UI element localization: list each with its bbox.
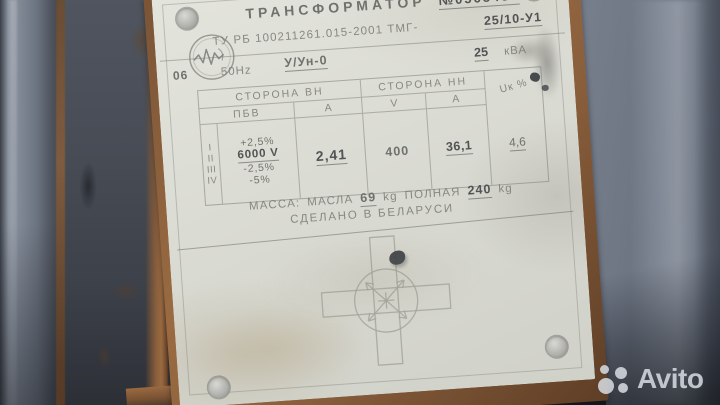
nameplate-assembly: ТРАНСФОРМАТОР №0568433 ТУ РБ 100211261.0… — [143, 0, 608, 405]
rust-streak-left — [56, 0, 65, 405]
mass-label: МАССА: — [249, 197, 301, 213]
kg-unit-1: kg — [383, 190, 398, 203]
transformer-title: ТРАНСФОРМАТОР — [245, 0, 426, 22]
serial-number: №0568433 — [438, 0, 520, 10]
tap-values: +2,5% 6000 V -2,5% -5% — [217, 118, 300, 203]
photo-transformer-nameplate: ТРАНСФОРМАТОР №0568433 ТУ РБ 100211261.0… — [0, 0, 720, 405]
lv-voltage-value: 400 — [363, 109, 432, 193]
oil-label: МАСЛА — [307, 194, 354, 209]
full-mass-value: 240 — [467, 182, 492, 200]
date-code: 06 — [172, 68, 188, 83]
avito-logo-icon — [598, 363, 631, 396]
oil-mass-value: 69 — [360, 190, 377, 207]
power-value: 25 — [474, 45, 489, 62]
avito-brand-text: Avito — [637, 363, 703, 395]
rivet-bottom-right — [545, 335, 568, 358]
avito-watermark: Avito — [598, 358, 716, 400]
uk-value: 4,6 — [487, 101, 548, 185]
vector-group: У/Ун-0 — [284, 53, 328, 72]
panel-highlight-streak — [10, 0, 17, 405]
type-code: 25/10-У1 — [483, 10, 542, 30]
full-mass-label: ПОЛНАЯ — [404, 186, 461, 202]
dark-mark-small — [542, 85, 549, 91]
left-metal-panel — [0, 0, 60, 405]
power-unit: кВА — [504, 44, 528, 58]
frequency-label: 50Hz — [220, 64, 252, 78]
nameplate: ТРАНСФОРМАТОР №0568433 ТУ РБ 100211261.0… — [151, 0, 595, 405]
rivet-top-left — [175, 7, 198, 30]
lv-current-value: 36,1 — [427, 105, 492, 189]
hv-current-value: 2,41 — [295, 114, 368, 199]
kg-unit-2: kg — [498, 182, 513, 195]
